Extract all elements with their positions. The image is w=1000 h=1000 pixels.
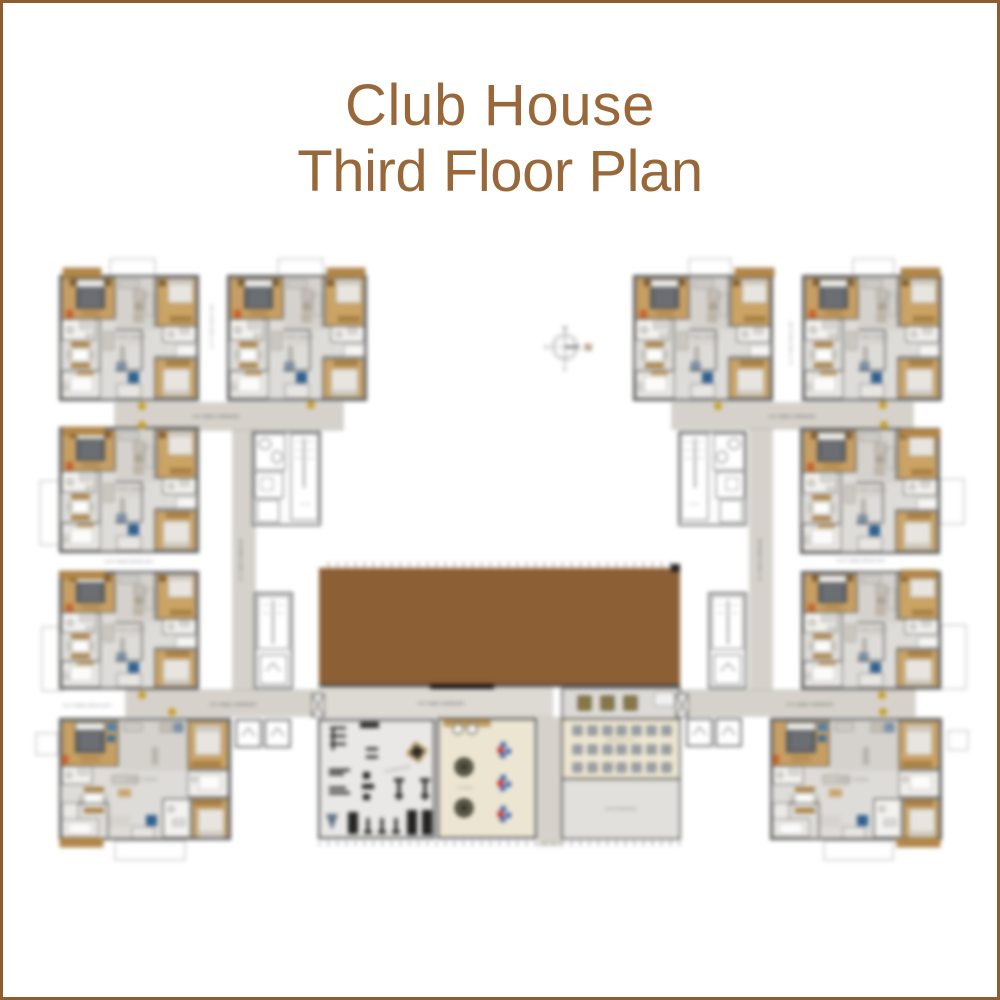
svg-text:6'-6" WIDE CORRIDOR: 6'-6" WIDE CORRIDOR [769, 414, 816, 419]
svg-text:W: W [562, 326, 568, 332]
svg-text:12'-0" WIDE DRIVE WAY: 12'-0" WIDE DRIVE WAY [104, 559, 153, 564]
svg-text:N: N [584, 342, 593, 354]
svg-text:BANQUET HALL: BANQUET HALL [607, 738, 636, 742]
svg-text:LOUNGE: LOUNGE [457, 786, 474, 790]
svg-text:MULTIPURPOSE: MULTIPURPOSE [605, 806, 637, 811]
svg-text:12'-0" WIDE DRIVE WAY: 12'-0" WIDE DRIVE WAY [788, 320, 793, 365]
svg-text:6'-6" WIDE CORRIDOR: 6'-6" WIDE CORRIDOR [787, 702, 834, 707]
svg-text:6'-6" WIDE CORRIDOR: 6'-6" WIDE CORRIDOR [757, 539, 762, 582]
svg-text:12'-0" WIDE DRIVE WAY: 12'-0" WIDE DRIVE WAY [209, 303, 214, 348]
svg-text:9'-0" WIDE CORRIDOR: 9'-0" WIDE CORRIDOR [418, 701, 465, 706]
svg-text:6'-6" WIDE CORRIDOR: 6'-6" WIDE CORRIDOR [210, 702, 257, 707]
svg-text:E: E [563, 367, 567, 373]
svg-text:12'-0" WIDE DRIVE WAY: 12'-0" WIDE DRIVE WAY [836, 558, 885, 563]
svg-text:6'-6" WIDE CORRIDOR: 6'-6" WIDE CORRIDOR [193, 414, 240, 419]
svg-text:6'-6" WIDE CORRIDOR: 6'-6" WIDE CORRIDOR [238, 539, 243, 582]
svg-text:S: S [544, 346, 548, 352]
svg-text:12'-0" WIDE DRIVE WAY: 12'-0" WIDE DRIVE WAY [62, 703, 111, 708]
